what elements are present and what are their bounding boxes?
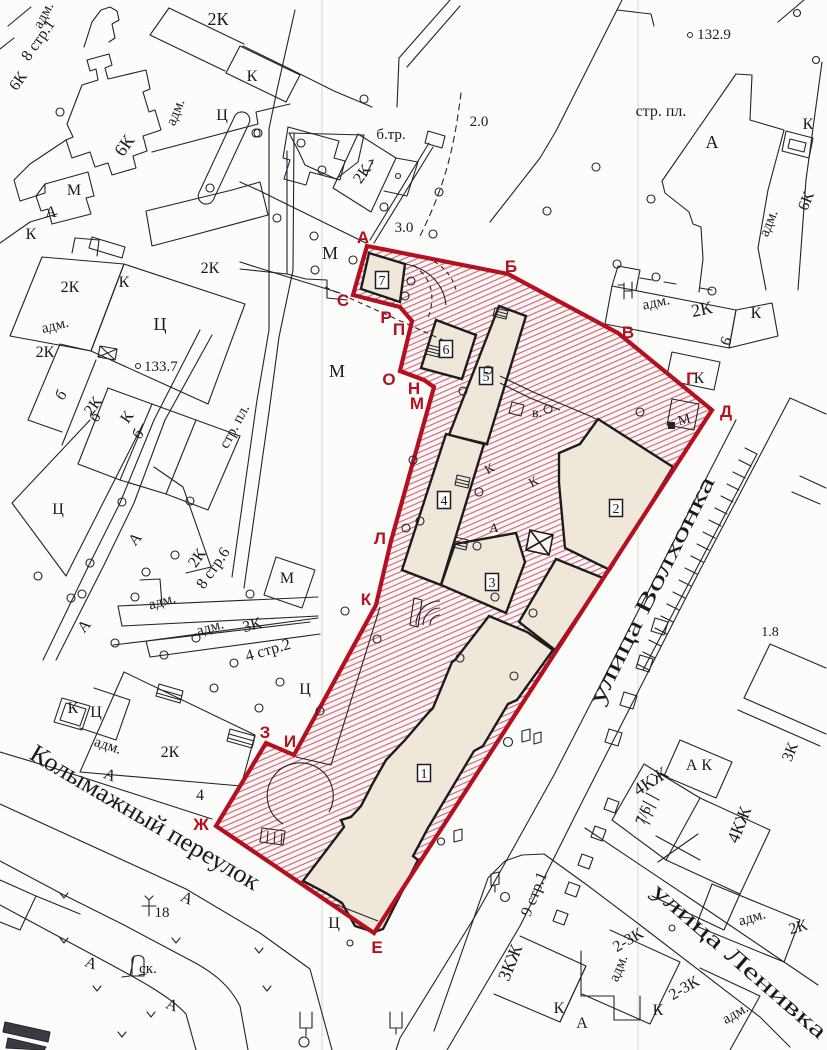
svg-text:В: В — [622, 323, 634, 342]
svg-text:1.8: 1.8 — [761, 625, 779, 640]
svg-text:133.7: 133.7 — [144, 359, 178, 375]
svg-text:Л: Л — [374, 529, 386, 548]
svg-text:М: М — [67, 182, 81, 199]
svg-text:А К: А К — [686, 757, 713, 774]
svg-text:Ц: Ц — [90, 704, 102, 721]
svg-text:2К: 2К — [201, 260, 220, 277]
svg-text:К: К — [751, 305, 762, 322]
svg-text:4: 4 — [196, 787, 204, 804]
svg-text:5: 5 — [483, 370, 490, 385]
svg-text:Ц: Ц — [52, 501, 64, 518]
svg-text:2К: 2К — [61, 279, 80, 296]
svg-text:Ц: Ц — [299, 681, 311, 698]
svg-text:Р: Р — [380, 308, 391, 327]
svg-text:3.0: 3.0 — [395, 220, 414, 236]
svg-text:18: 18 — [155, 905, 170, 921]
svg-text:б.тр.: б.тр. — [376, 127, 405, 143]
svg-text:К: К — [653, 1002, 664, 1019]
svg-text:К: К — [361, 590, 372, 609]
svg-text:стр. пл.: стр. пл. — [636, 103, 687, 120]
svg-text:Б: Б — [505, 257, 517, 276]
svg-text:П: П — [393, 320, 405, 339]
svg-text:Ц: Ц — [154, 314, 167, 334]
svg-text:К: К — [247, 68, 258, 85]
svg-text:М: М — [280, 570, 294, 587]
svg-text:1: 1 — [421, 767, 428, 782]
svg-text:С: С — [337, 291, 349, 310]
svg-text:2К: 2К — [207, 9, 229, 29]
svg-text:К: К — [803, 116, 814, 133]
svg-text:М: М — [322, 243, 338, 263]
svg-text:А: А — [489, 520, 499, 535]
svg-text:Ц: Ц — [216, 107, 228, 124]
svg-text:Е: Е — [371, 938, 382, 957]
svg-text:К: К — [26, 226, 37, 243]
svg-text:К: К — [119, 274, 130, 291]
svg-text:2.0: 2.0 — [470, 114, 489, 130]
svg-text:К: К — [68, 700, 79, 717]
svg-text:Г: Г — [686, 369, 696, 388]
svg-text:в.: в. — [532, 406, 542, 421]
svg-text:132.9: 132.9 — [697, 27, 731, 43]
svg-text:7: 7 — [379, 274, 386, 289]
svg-text:Н: Н — [408, 379, 420, 398]
svg-text:Ц: Ц — [328, 915, 340, 932]
svg-text:А: А — [706, 132, 719, 152]
svg-text:3: 3 — [489, 576, 496, 591]
svg-text:2: 2 — [613, 502, 620, 517]
svg-text:4: 4 — [441, 494, 448, 509]
svg-text:А: А — [576, 1015, 588, 1032]
svg-text:К: К — [554, 1000, 565, 1017]
svg-text:И: И — [284, 732, 296, 751]
svg-text:М: М — [329, 361, 345, 381]
svg-text:6: 6 — [443, 343, 450, 358]
svg-text:А: А — [45, 204, 57, 221]
svg-text:О: О — [382, 370, 395, 389]
svg-text:З: З — [260, 723, 271, 742]
svg-text:Д: Д — [720, 402, 732, 421]
svg-text:Ж: Ж — [192, 815, 209, 834]
svg-text:ск.: ск. — [139, 961, 157, 977]
svg-text:2К: 2К — [36, 344, 55, 361]
svg-text:2К: 2К — [161, 744, 180, 761]
svg-text:А: А — [357, 228, 369, 247]
